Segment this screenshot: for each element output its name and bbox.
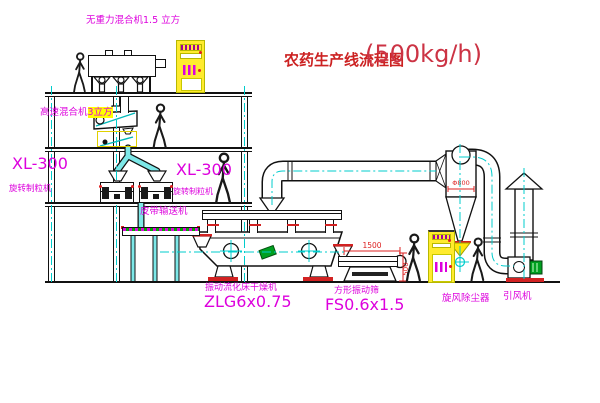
nozzle-flange [287,224,299,226]
induced-draft-fan [506,257,544,282]
granulator-bearing [141,187,148,199]
label-dryer-model: ZLG6x0.75 [204,294,292,310]
cabinet-display [180,53,202,59]
dryer-leg [215,266,233,277]
label-high-speed-mixer-name: 高速混合机 [40,107,88,118]
label-granulator-left-model: XL-300 [12,156,68,172]
control-cabinet-1 [176,40,205,93]
screw-feeder-box [97,131,137,147]
screen-deck-line [339,261,397,262]
granulator-left-body [100,182,134,203]
label-screen-model: FS0.6x1.5 [325,297,404,313]
label-high-speed-mixer-size: 3立方 [88,107,113,118]
cabinet-lamp [198,69,201,72]
fan-base [506,278,544,282]
dryer-hood-nozzle [249,219,258,233]
granulator-outlet [153,194,159,199]
nozzle-flange [207,224,219,226]
dryer-hood [202,210,342,220]
granulator-right-body [139,182,173,203]
cabinet-glyphs [183,65,196,75]
belt-conveyor-table [122,227,200,236]
label-granulator-right-name: 旋转制粒机 [173,188,213,196]
cabinet-lamp [448,239,451,242]
granulator-flange [138,185,141,188]
conveyor-legs [133,236,177,281]
dryer-exhaust-duct [272,161,436,200]
label-belt-conveyor: 皮带输送机 [140,207,188,217]
top-mixer-body [88,55,156,77]
cabinet-indicator-row [180,44,202,51]
granulator-bearing [102,187,109,199]
top-mixer-funnels [92,77,150,92]
dryer-hood-nozzle [207,219,216,233]
screen-deck [338,256,398,267]
label-granulator-right-model: XL-300 [176,162,232,178]
nozzle-flange [325,224,337,226]
granulator-hoppers [109,171,166,181]
page-title-capacity: (500kg/h) [365,42,482,66]
granulator-flange [99,185,102,188]
dryer-hood-nozzle [325,219,334,233]
top-mixer-vent [105,50,113,56]
process-flow-diagram: 1500 500 Φ800 [0,0,600,403]
cabinet-glyphs [435,262,447,272]
control-cabinet-2 [428,230,455,283]
cyclone-dia-dim: Φ800 [452,179,470,187]
granulator-outlet [114,194,120,199]
dryer-hood-nozzle [287,219,296,233]
granulator-flange [131,185,134,188]
granulator-feed-pipes [117,148,157,171]
belt-surface [123,228,199,231]
top-mixer-vent [124,50,132,56]
dryer-leg [310,266,328,277]
label-granulator-left-name: 旋转制粒机 [9,185,52,194]
roof-drop-pipe [120,97,129,113]
cabinet-lamp [449,265,452,268]
cyclone-vortex-finder [452,146,470,164]
person-cyclone [471,238,483,280]
top-mixer-motor [155,59,166,68]
person-floor2 [154,104,166,147]
granulator-bearing [164,187,171,199]
person-screen [407,235,420,281]
label-fan: 引风机 [503,292,532,302]
label-cyclone: 旋风除尘器 [442,294,490,304]
label-top-mixer: 无重力混合机1.5 立方 [86,16,180,26]
cabinet-door [181,78,202,91]
cabinet-display [432,243,451,248]
nozzle-flange [249,224,261,226]
fan-motor [530,261,542,274]
granulator-bearing [125,187,132,199]
label-high-speed-mixer: 高速混合机3立方 [40,108,113,118]
person-roof [74,53,85,91]
cabinet-lamp [199,51,202,54]
screen-length-dim: 1500 [362,241,381,250]
hood-inner-line [203,213,341,214]
